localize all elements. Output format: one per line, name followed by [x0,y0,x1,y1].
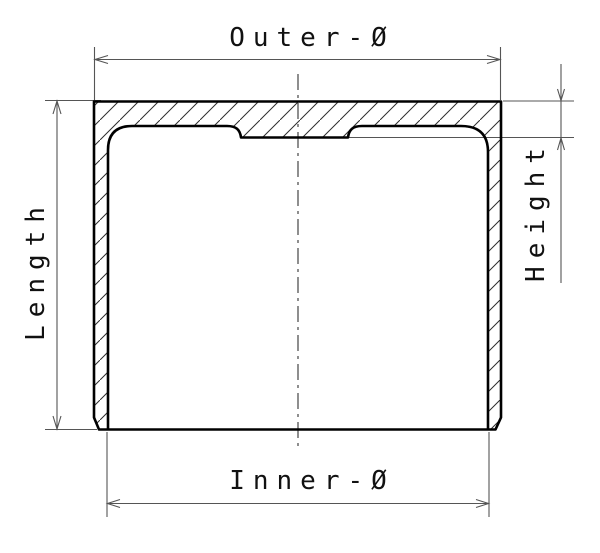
technical-drawing-canvas: Outer-Ø Inner-Ø Length Height [0,0,600,553]
outer-contour [94,102,501,430]
height-label: Height [523,140,549,282]
outer-diameter-label: Outer-Ø [229,25,395,51]
inner-diameter-label: Inner-Ø [229,468,395,494]
section-hatch-fill [94,102,501,430]
length-label: Length [23,199,49,341]
part-outline [94,102,501,430]
